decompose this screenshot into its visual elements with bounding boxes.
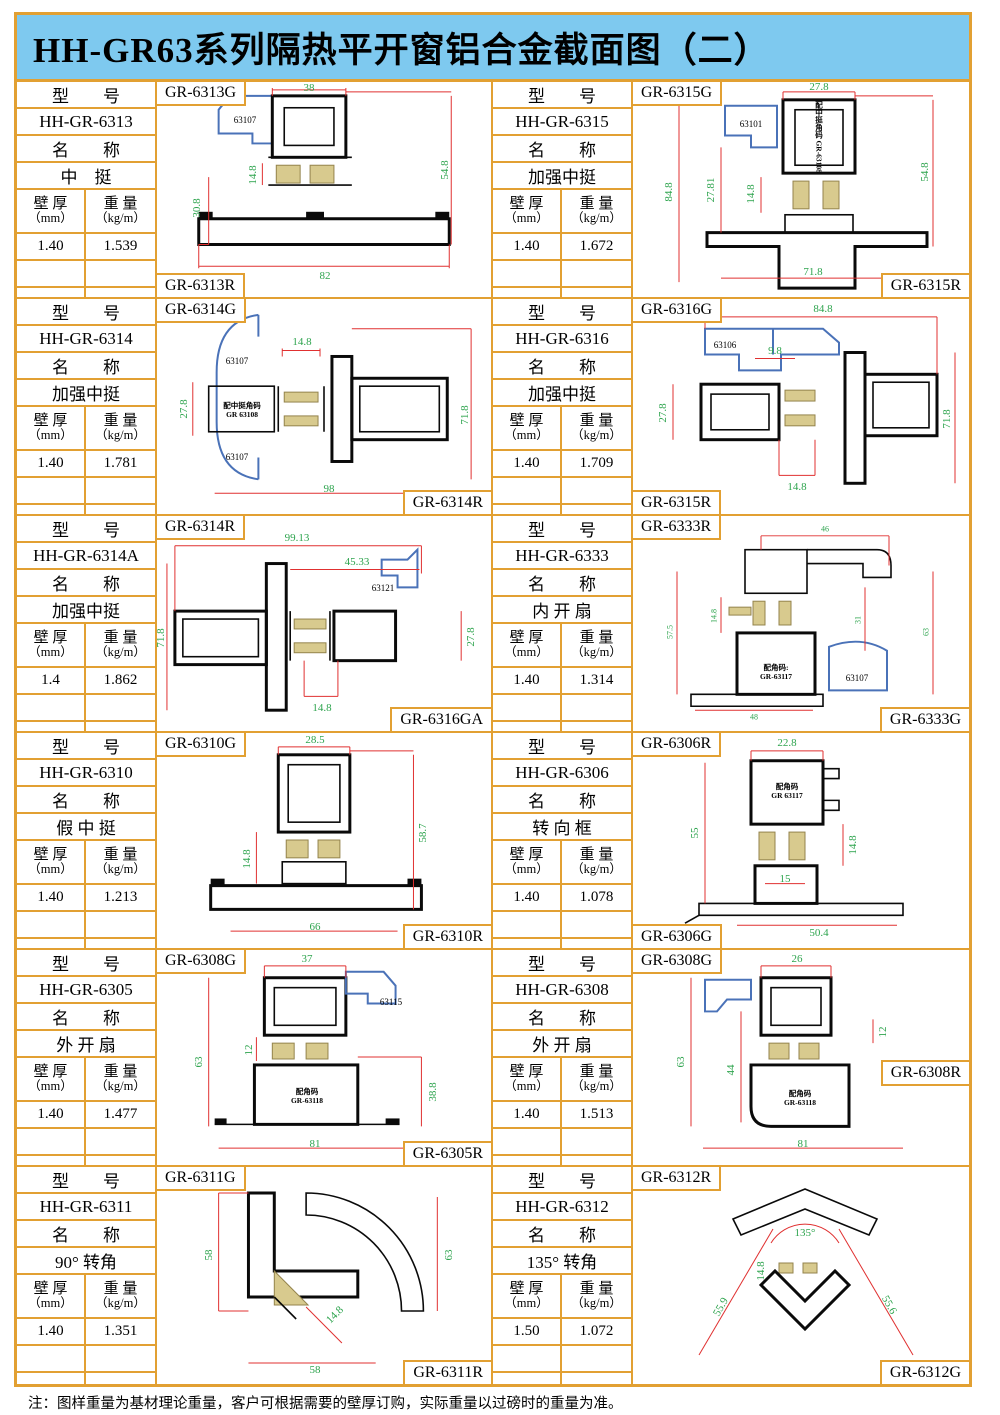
profile-cell-6333: 型 号 HH-GR-6333 名 称 内 开 扇 壁 厚（mm） 重 量（kg/… xyxy=(493,516,969,733)
dim-top: 84.8 xyxy=(813,303,832,315)
page-title: HH-GR63系列隔热平开窗铝合金截面图（二） xyxy=(33,22,770,73)
weight-value: 1.314 xyxy=(562,668,631,693)
thickness-value: 1.40 xyxy=(493,1102,562,1127)
profile-label-bottom: GR-6308R xyxy=(881,1060,969,1086)
name-value: 加强中挺 xyxy=(17,597,155,624)
profile-label-top: GR-6306R xyxy=(633,733,721,757)
name-value: 加强中挺 xyxy=(17,380,155,407)
dim-bottom: 14.8 xyxy=(312,702,331,714)
model-value: HH-GR-6306 xyxy=(493,760,631,787)
model-value: HH-GR-6311 xyxy=(17,1194,155,1221)
dim-inner: 15 xyxy=(780,873,791,885)
section-drawing: GR-6314R GR-6316GA 99.13 45.33 71.8 27.8… xyxy=(157,516,491,731)
dim-left: 63 xyxy=(675,1057,687,1068)
profile-cell-6305: 型 号 HH-GR-6305 名 称 外 开 扇 壁 厚（mm） 重 量（kg/… xyxy=(17,950,493,1167)
section-drawing: GR-6316G GR-6315R 84.8 9.8 27.8 71.8 14.… xyxy=(633,299,969,514)
model-value: HH-GR-6333 xyxy=(493,543,631,570)
dim-inner2: 14.8 xyxy=(745,184,757,203)
info-table: 型 号 HH-GR-6314A 名 称 加强中挺 壁 厚（mm） 重 量（kg/… xyxy=(17,516,157,731)
profile-label-top: GR-6316G xyxy=(633,299,722,323)
part-number: 63107 xyxy=(846,673,869,683)
model-value: HH-GR-6316 xyxy=(493,326,631,353)
part-number: 63107 xyxy=(234,115,257,125)
profile-label-bottom: GR-6311R xyxy=(403,1360,491,1384)
part-number: 63107 xyxy=(226,452,249,462)
dim-inner: 45.33 xyxy=(345,556,370,568)
name-value: 90° 转角 xyxy=(17,1248,155,1275)
dim-inner: 14.8 xyxy=(710,609,719,623)
dim-right: 54.8 xyxy=(439,160,451,179)
thickness-value: 1.40 xyxy=(493,885,562,910)
name-value: 假 中 挺 xyxy=(17,814,155,841)
profile-label-top: GR-6314R xyxy=(157,516,245,540)
info-table: 型 号 HH-GR-6313 名 称 中 挺 壁 厚（mm） 重 量（kg/m）… xyxy=(17,82,157,297)
dim-top: 26 xyxy=(792,953,803,965)
dim-right: 71.8 xyxy=(459,405,471,424)
info-table: 型 号 HH-GR-6314 名 称 加强中挺 壁 厚（mm） 重 量（kg/m… xyxy=(17,299,157,514)
connector-note: 配角码 GR 63117 xyxy=(771,782,802,800)
name-value: 135° 转角 xyxy=(493,1248,631,1275)
name-value: 外 开 扇 xyxy=(17,1031,155,1058)
spec-header: 壁 厚（mm） 重 量（kg/m） xyxy=(17,190,155,234)
info-table: 型 号 HH-GR-6310 名 称 假 中 挺 壁 厚（mm） 重 量（kg/… xyxy=(17,733,157,948)
weight-value: 1.213 xyxy=(86,885,155,910)
dim-left: 30.8 xyxy=(191,198,203,217)
info-table: 型 号 HH-GR-6308 名 称 外 开 扇 壁 厚（mm） 重 量（kg/… xyxy=(493,950,633,1165)
profile-label-bottom: GR-6315R xyxy=(881,273,969,297)
profile-label-bottom: GR-6316GA xyxy=(390,707,491,731)
info-table: 型 号 HH-GR-6315 名 称 加强中挺 壁 厚（mm） 重 量（kg/m… xyxy=(493,82,633,297)
dim-left: 63 xyxy=(193,1057,205,1068)
thickness-value: 1.50 xyxy=(493,1319,562,1344)
profile-label-bottom: GR-6333G xyxy=(880,707,969,731)
dim-top: 28.5 xyxy=(305,734,324,746)
dim-inner: 27.81 xyxy=(705,178,717,203)
thickness-value: 1.40 xyxy=(17,1319,86,1344)
dim-inner: 14.8 xyxy=(755,1261,767,1280)
connector-note: 配中挺角码 GR 63108 xyxy=(223,401,261,419)
thickness-value: 1.40 xyxy=(493,234,562,259)
profile-label-bottom: GR-6305R xyxy=(403,1141,491,1165)
name-value: 中 挺 xyxy=(17,163,155,190)
model-value: HH-GR-6308 xyxy=(493,977,631,1004)
dim-bottom: 82 xyxy=(320,270,331,282)
model-label: 型 号 xyxy=(17,82,155,109)
profile-label-bottom: GR-6313R xyxy=(157,273,245,297)
thickness-value: 1.40 xyxy=(17,234,86,259)
dim-left: 71.8 xyxy=(157,628,167,647)
section-drawing: GR-6313G GR-6313R 38 30.8 14.8 54.8 82 6… xyxy=(157,82,491,297)
profile-label-bottom: GR-6306G xyxy=(633,924,722,948)
profile-label-top: GR-6314G xyxy=(157,299,246,323)
dim-top: 14.8 xyxy=(292,336,311,348)
weight-value: 1.078 xyxy=(562,885,631,910)
dim-left: 27.8 xyxy=(178,399,190,418)
thickness-value: 1.40 xyxy=(17,885,86,910)
name-value: 内 开 扇 xyxy=(493,597,631,624)
profile-cell-6308: 型 号 HH-GR-6308 名 称 外 开 扇 壁 厚（mm） 重 量（kg/… xyxy=(493,950,969,1167)
info-table: 型 号 HH-GR-6305 名 称 外 开 扇 壁 厚（mm） 重 量（kg/… xyxy=(17,950,157,1165)
dim-mid: 14.8 xyxy=(247,165,259,184)
dim-top: 27.8 xyxy=(809,82,828,93)
profile-cell-6310: 型 号 HH-GR-6310 名 称 假 中 挺 壁 厚（mm） 重 量（kg/… xyxy=(17,733,493,950)
dim-right: 12 xyxy=(877,1027,889,1038)
dim-bottom: 14.8 xyxy=(787,481,806,493)
dim-bottom: 50.4 xyxy=(809,927,828,939)
dim-angle: 135° xyxy=(795,1227,816,1239)
weight-value: 1.539 xyxy=(86,234,155,259)
model-value: HH-GR-6313 xyxy=(17,109,155,136)
thickness-value: 1.40 xyxy=(493,451,562,476)
info-table: 型 号 HH-GR-6312 名 称 135° 转角 壁 厚（mm） 重 量（k… xyxy=(493,1167,633,1384)
weight-value: 1.072 xyxy=(562,1319,631,1344)
dim-left: 84.8 xyxy=(663,182,675,201)
connector-note: 配角码 GR-63118 xyxy=(784,1089,816,1107)
weight-value: 1.351 xyxy=(86,1319,155,1344)
model-value: HH-GR-6315 xyxy=(493,109,631,136)
section-drawing: GR-6314G GR-6314R 14.8 27.8 71.8 98 6310… xyxy=(157,299,491,514)
profile-sketch xyxy=(157,82,491,297)
section-drawing: GR-6333R GR-6333G 46 57.5 14.8 31 63 48 … xyxy=(633,516,969,731)
dim-right: 71.8 xyxy=(941,409,953,428)
info-table: 型 号 HH-GR-6306 名 称 转 向 框 壁 厚（mm） 重 量（kg/… xyxy=(493,733,633,948)
name-value: 转 向 框 xyxy=(493,814,631,841)
connector-note: 配中挺角码 GR-63108 xyxy=(815,101,824,173)
profile-label-bottom: GR-6312G xyxy=(880,1360,969,1384)
profile-cell-6314a: 型 号 HH-GR-6314A 名 称 加强中挺 壁 厚（mm） 重 量（kg/… xyxy=(17,516,493,733)
dim-bottom: 58 xyxy=(310,1364,321,1376)
footer-note: 注：图样重量为基材理论重量，客户可根据需要的壁厚订购，实际重量以过磅时的重量为准… xyxy=(28,1392,623,1413)
model-value: HH-GR-6314 xyxy=(17,326,155,353)
model-value: HH-GR-6314A xyxy=(17,543,155,570)
dim-left: 57.5 xyxy=(666,625,675,639)
weight-value: 1.709 xyxy=(562,451,631,476)
info-table: 型 号 HH-GR-6311 名 称 90° 转角 壁 厚（mm） 重 量（kg… xyxy=(17,1167,157,1384)
name-value: 加强中挺 xyxy=(493,163,631,190)
name-label: 名 称 xyxy=(17,136,155,163)
section-drawing: GR-6308G GR-6305R 37 63 12 38.8 81 63115… xyxy=(157,950,491,1165)
info-table: 型 号 HH-GR-6316 名 称 加强中挺 壁 厚（mm） 重 量（kg/m… xyxy=(493,299,633,514)
dim-bottom: 98 xyxy=(324,483,335,495)
connector-note: 配角码 GR-63118 xyxy=(291,1087,323,1105)
dim-left: 58 xyxy=(203,1250,215,1261)
dim-inner2: 31 xyxy=(854,616,863,624)
dim-top: 38 xyxy=(304,82,315,94)
profile-label-top: GR-6333R xyxy=(633,516,721,540)
profile-cell-6314: 型 号 HH-GR-6314 名 称 加强中挺 壁 厚（mm） 重 量（kg/m… xyxy=(17,299,493,516)
dim-bottom: 81 xyxy=(798,1138,809,1150)
thickness-value: 1.40 xyxy=(17,1102,86,1127)
dim-right: 27.8 xyxy=(465,627,477,646)
thickness-value: 1.4 xyxy=(17,668,86,693)
profile-label-top: GR-6313G xyxy=(157,82,246,106)
weight-value: 1.781 xyxy=(86,451,155,476)
dim-right: 63 xyxy=(443,1250,455,1261)
thickness-value: 1.40 xyxy=(493,668,562,693)
section-drawing: GR-6306R GR-6306G 22.8 55 14.8 15 50.4 配… xyxy=(633,733,969,948)
dim-bottom: 71.8 xyxy=(803,266,822,278)
dim-inner: 9.8 xyxy=(768,345,782,357)
spec-values: 1.40 1.539 xyxy=(17,234,155,261)
profile-label-top: GR-6311G xyxy=(157,1167,246,1191)
dim-inner: 12 xyxy=(243,1045,255,1056)
profile-label-top: GR-6312R xyxy=(633,1167,721,1191)
profile-label-top: GR-6310G xyxy=(157,733,246,757)
profile-cell-6311: 型 号 HH-GR-6311 名 称 90° 转角 壁 厚（mm） 重 量（kg… xyxy=(17,1167,493,1384)
section-drawing: GR-6311G GR-6311R 58 63 14.8 58 xyxy=(157,1167,491,1384)
section-drawing: GR-6312R GR-6312G 135° 14.8 55.9 55.6 xyxy=(633,1167,969,1384)
dim-left: 55 xyxy=(689,828,701,839)
part-number: 63101 xyxy=(740,119,763,129)
profile-label-top: GR-6308G xyxy=(633,950,722,974)
part-number: 63121 xyxy=(372,583,395,593)
profile-label-top: GR-6315G xyxy=(633,82,722,106)
dim-right: 14.8 xyxy=(847,835,859,854)
section-drawing: GR-6315G GR-6315R 27.8 84.8 27.81 14.8 5… xyxy=(633,82,969,297)
name-value: 加强中挺 xyxy=(493,380,631,407)
dim-left: 27.8 xyxy=(657,403,669,422)
page-frame: HH-GR63系列隔热平开窗铝合金截面图（二） 型 号 HH-GR-6313 名… xyxy=(14,12,972,1387)
dim-bottom: 66 xyxy=(310,921,321,933)
dim-right: 63 xyxy=(922,628,931,636)
dim-top: 22.8 xyxy=(777,737,796,749)
profile-label-bottom: GR-6310R xyxy=(403,924,491,948)
section-drawing: GR-6308G GR-6308R 26 63 44 12 81 配角码 GR-… xyxy=(633,950,969,1165)
profile-cell-6306: 型 号 HH-GR-6306 名 称 转 向 框 壁 厚（mm） 重 量（kg/… xyxy=(493,733,969,950)
catalog-sheet: HH-GR63系列隔热平开窗铝合金截面图（二） 型 号 HH-GR-6313 名… xyxy=(0,0,1000,1415)
model-value: HH-GR-6312 xyxy=(493,1194,631,1221)
weight-value: 1.513 xyxy=(562,1102,631,1127)
profile-grid: 型 号 HH-GR-6313 名 称 中 挺 壁 厚（mm） 重 量（kg/m）… xyxy=(17,82,969,1384)
part-number: 63115 xyxy=(380,997,402,1007)
thickness-value: 1.40 xyxy=(17,451,86,476)
weight-value: 1.672 xyxy=(562,234,631,259)
name-value: 外 开 扇 xyxy=(493,1031,631,1058)
model-value: HH-GR-6310 xyxy=(17,760,155,787)
section-drawing: GR-6310G GR-6310R 28.5 14.8 58.7 66 xyxy=(157,733,491,948)
profile-cell-6315: 型 号 HH-GR-6315 名 称 加强中挺 壁 厚（mm） 重 量（kg/m… xyxy=(493,82,969,299)
part-number: 63106 xyxy=(714,340,737,350)
dim-top: 37 xyxy=(302,953,313,965)
dim-right: 38.8 xyxy=(427,1082,439,1101)
dim-bottom: 48 xyxy=(750,713,758,722)
connector-note: 配角码: GR-63117 xyxy=(760,663,792,681)
dim-top: 46 xyxy=(821,525,829,534)
profile-label-bottom: GR-6315R xyxy=(633,490,721,514)
dim-bottom: 81 xyxy=(310,1138,321,1150)
dim-inner: 44 xyxy=(725,1065,737,1076)
dim-top: 99.13 xyxy=(285,532,310,544)
profile-cell-6316: 型 号 HH-GR-6316 名 称 加强中挺 壁 厚（mm） 重 量（kg/m… xyxy=(493,299,969,516)
title-band: HH-GR63系列隔热平开窗铝合金截面图（二） xyxy=(17,15,969,82)
weight-value: 1.862 xyxy=(86,668,155,693)
dim-right: 54.8 xyxy=(919,162,931,181)
profile-cell-6313: 型 号 HH-GR-6313 名 称 中 挺 壁 厚（mm） 重 量（kg/m）… xyxy=(17,82,493,299)
profile-label-top: GR-6308G xyxy=(157,950,246,974)
info-table: 型 号 HH-GR-6333 名 称 内 开 扇 壁 厚（mm） 重 量（kg/… xyxy=(493,516,633,731)
profile-label-bottom: GR-6314R xyxy=(403,490,491,514)
part-number: 63107 xyxy=(226,356,249,366)
weight-value: 1.477 xyxy=(86,1102,155,1127)
dim-right: 58.7 xyxy=(417,823,429,842)
dim-left: 14.8 xyxy=(241,849,253,868)
model-value: HH-GR-6305 xyxy=(17,977,155,1004)
profile-cell-6312: 型 号 HH-GR-6312 名 称 135° 转角 壁 厚（mm） 重 量（k… xyxy=(493,1167,969,1384)
